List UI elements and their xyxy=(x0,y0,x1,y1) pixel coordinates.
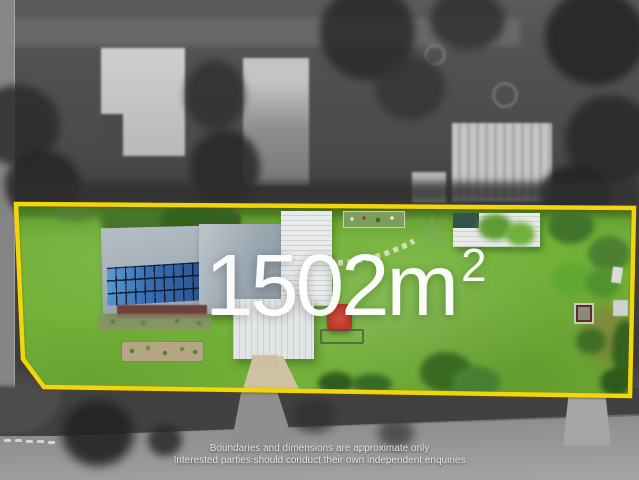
disclaimer-line-1: Boundaries and dimensions are approximat… xyxy=(0,443,639,455)
street-left-edge xyxy=(0,0,15,438)
house-roof-left-wing xyxy=(101,226,204,315)
road-centerline-dash xyxy=(15,439,22,442)
area-value: 1502 xyxy=(205,237,387,334)
disclaimer-line-2: Interested parties should conduct their … xyxy=(0,455,639,467)
garden-object xyxy=(613,300,628,316)
roof-notch xyxy=(101,114,123,156)
shed-roof-panel xyxy=(453,213,479,228)
front-patio xyxy=(99,314,211,330)
tree-blob xyxy=(185,60,245,130)
bush xyxy=(576,328,606,354)
bush xyxy=(600,368,632,396)
bush xyxy=(548,208,594,244)
real-estate-aerial-photo: 1502m2 Boundaries and dimensions are app… xyxy=(0,0,639,480)
rear-garden-bed xyxy=(343,211,405,228)
path-landing xyxy=(252,355,278,370)
garden-bed-mulch xyxy=(121,341,204,362)
garden-ring xyxy=(492,82,518,108)
disclaimer-text: Boundaries and dimensions are approximat… xyxy=(0,443,639,466)
road-centerline-dash xyxy=(4,439,11,442)
solar-panel-array xyxy=(107,262,201,306)
area-unit: m xyxy=(387,237,456,334)
neighbor-house-roof xyxy=(101,48,185,156)
area-exponent: 2 xyxy=(461,242,487,288)
bush xyxy=(505,222,535,246)
land-area-label: 1502m2 xyxy=(205,242,487,329)
street-tree-blob xyxy=(292,398,336,432)
neighbor-driveway xyxy=(563,390,611,446)
tree-blob xyxy=(375,55,445,120)
raised-planter-box xyxy=(574,303,594,324)
bush xyxy=(588,236,630,272)
hedge xyxy=(318,372,354,394)
hedge xyxy=(352,374,392,394)
fence-line-shadow xyxy=(14,182,639,204)
